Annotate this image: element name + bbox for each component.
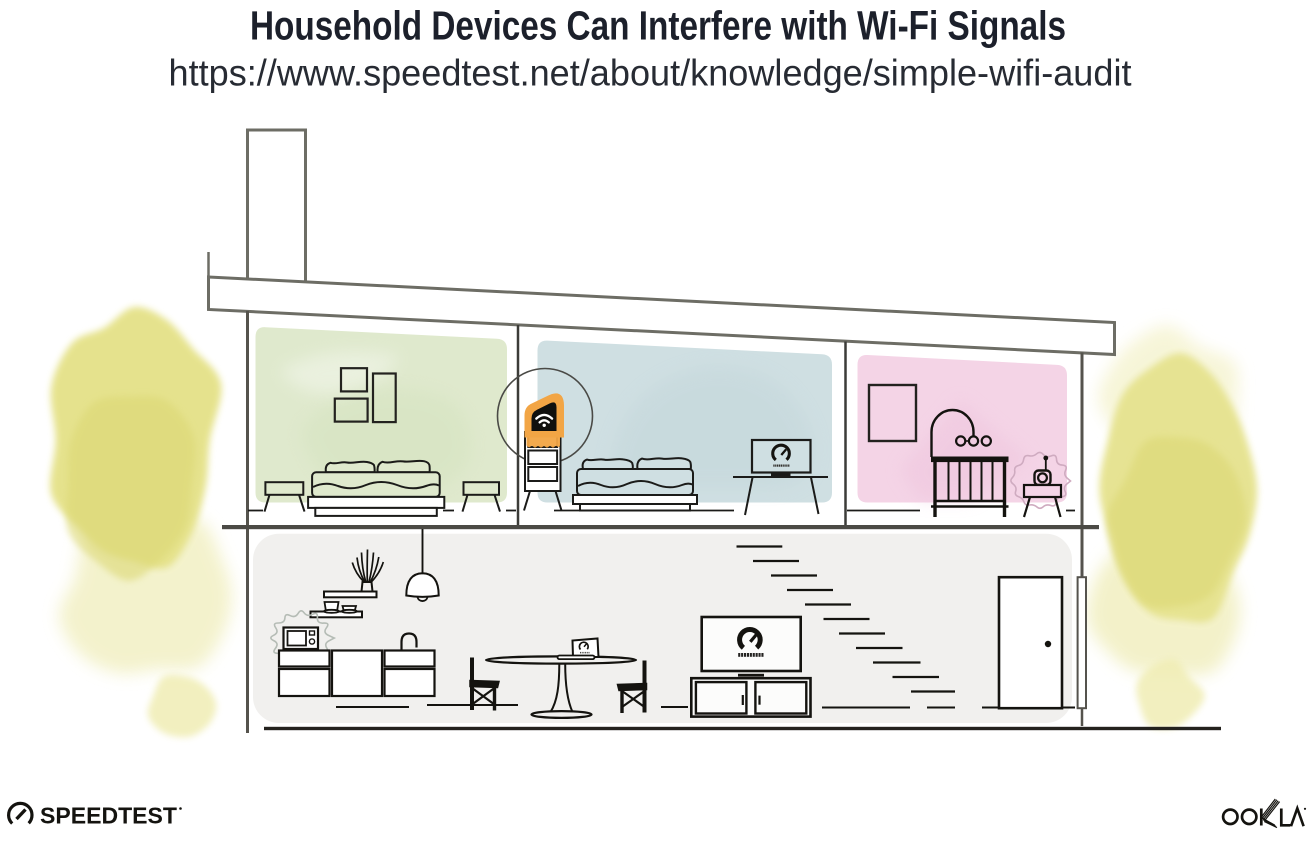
svg-text:SPEEDTEST: SPEEDTEST	[40, 803, 178, 829]
svg-text:Household Devices Can Interfer: Household Devices Can Interfere with Wi-…	[250, 3, 1066, 49]
svg-text:https://www.speedtest.net/abou: https://www.speedtest.net/about/knowledg…	[169, 52, 1133, 94]
